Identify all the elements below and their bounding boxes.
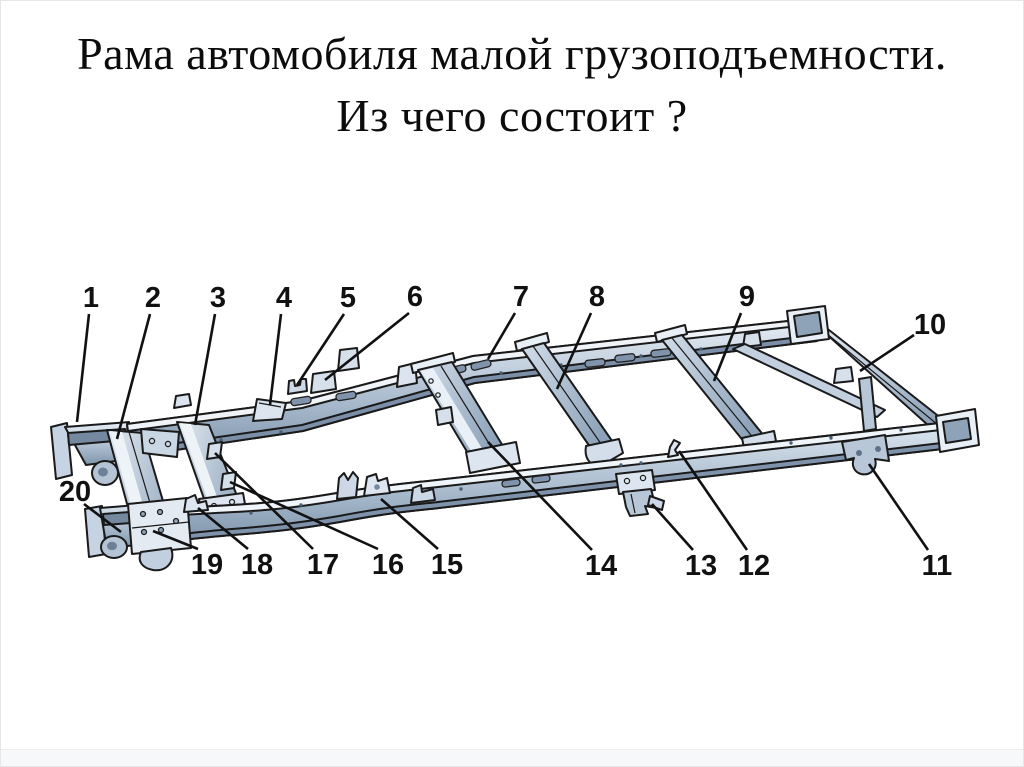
- callout-number-8: 8: [589, 281, 605, 313]
- callout-number-15: 15: [431, 549, 463, 581]
- shackle-hole: [875, 446, 881, 452]
- far-horn-hook-hole: [98, 468, 108, 477]
- callout-number-11: 11: [922, 550, 953, 582]
- callout-number-4: 4: [276, 282, 292, 314]
- callout-line-13: [652, 504, 693, 550]
- near-rail-end-opening: [943, 418, 971, 443]
- frame-diagram: 1234567891011121314151617181920: [1, 1, 1024, 767]
- crossmember-3-tab: [436, 407, 453, 425]
- shackle-bracket-11: [842, 435, 889, 474]
- callout-number-13: 13: [685, 550, 717, 582]
- clamp-bracket-5: [288, 379, 307, 394]
- callout-number-3: 3: [210, 282, 226, 314]
- far-rail-tab-bracket: [174, 394, 191, 408]
- front-junction-plate-19: [128, 498, 191, 554]
- shackle-hole: [856, 450, 862, 456]
- callout-number-1: 1: [83, 282, 99, 314]
- callout-number-17: 17: [307, 549, 339, 581]
- callout-line-2: [117, 314, 150, 439]
- near-horn-hook-hole: [107, 542, 117, 550]
- callout-number-5: 5: [340, 282, 356, 314]
- callout-line-1: [77, 314, 89, 422]
- callout-line-3: [195, 314, 215, 425]
- bracket-15-hole: [374, 484, 380, 490]
- callout-line-4: [270, 314, 281, 405]
- cab-mount-tab-16: [221, 472, 236, 490]
- callout-number-16: 16: [372, 549, 404, 581]
- callout-number-7: 7: [513, 281, 529, 313]
- spring-clamp-bracket: [337, 472, 358, 499]
- callout-number-10: 10: [914, 309, 946, 341]
- callout-number-9: 9: [739, 281, 755, 313]
- crossmember-1-gusset: [141, 429, 179, 457]
- callout-line-10: [860, 335, 914, 371]
- front-lower-hook: [140, 548, 173, 570]
- callout-number-18: 18: [241, 549, 273, 581]
- callout-number-12: 12: [738, 550, 770, 582]
- callout-number-20: 20: [59, 476, 91, 508]
- far-rail-end-opening: [794, 312, 822, 337]
- callout-number-2: 2: [145, 282, 161, 314]
- rear-brace-tab: [834, 367, 853, 383]
- tab-bracket-12: [668, 440, 680, 457]
- slide: Рама автомобиля малой грузоподъемности. …: [0, 0, 1024, 767]
- callout-line-11: [869, 464, 928, 550]
- rear-post: [859, 377, 876, 431]
- callout-number-19: 19: [191, 549, 223, 581]
- callout-number-14: 14: [585, 550, 617, 582]
- callout-number-6: 6: [407, 281, 423, 313]
- footer-strip: [1, 749, 1023, 766]
